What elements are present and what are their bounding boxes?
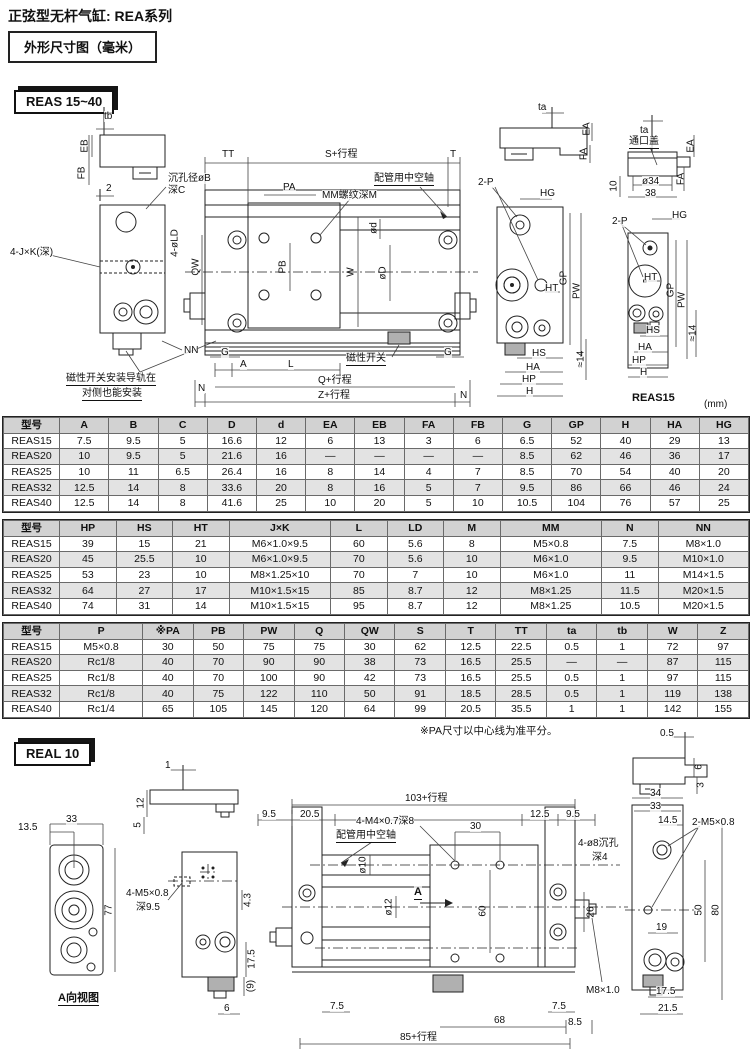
dim-label: G	[221, 347, 229, 358]
table-cell: 11.5	[602, 583, 659, 599]
dim-label: tb	[104, 111, 112, 122]
dim-label: 2	[106, 183, 112, 194]
table-cell: 70	[331, 552, 387, 568]
table-cell: 90	[294, 670, 344, 686]
table-cell: M10×1.0	[658, 552, 748, 568]
table-cell: 21.6	[207, 449, 256, 465]
dim-label: 4-ø8沉孔	[578, 838, 619, 849]
catalog-page: { "page": { "title": "正弦型无杆气缸: REA系列", "…	[0, 0, 750, 1049]
table-header-cell: B	[109, 418, 158, 434]
dim-label: 80	[711, 904, 722, 915]
table-cell: 40	[601, 433, 650, 449]
table-header-cell: d	[256, 418, 305, 434]
table-cell: M6×1.0×9.5	[229, 536, 331, 552]
table-cell: 10.5	[502, 495, 551, 511]
table-cell: M10×1.5×15	[229, 598, 331, 614]
table-cell: REAS15	[4, 433, 60, 449]
dim-label: 配管用中空轴	[374, 173, 434, 186]
table-cell: 53	[60, 567, 116, 583]
table-cell: M6×1.0	[500, 567, 602, 583]
dim-label: 20.5	[300, 809, 319, 820]
dimension-table-1: 型号ABCDdEAEBFAFBGGPHHAHGREAS157.59.5516.6…	[2, 416, 750, 513]
dim-label: ø34	[642, 176, 659, 187]
table-cell: 5.6	[387, 552, 443, 568]
table-cell: 17	[173, 583, 229, 599]
table-cell: 100	[244, 670, 294, 686]
dim-label: QW	[191, 258, 202, 275]
dimension-table: 型号ABCDdEAEBFAFBGGPHHAHGREAS157.59.5516.6…	[3, 417, 749, 512]
table-cell: 74	[60, 598, 116, 614]
unit-note: (mm)	[704, 399, 727, 410]
table-cell: 1	[597, 686, 647, 702]
dim-label: 19	[656, 922, 667, 933]
dim-label: PW	[677, 292, 688, 308]
dim-label: N	[460, 390, 467, 401]
table-cell: 5	[158, 449, 207, 465]
table-cell: 76	[601, 495, 650, 511]
table-cell: 41.6	[207, 495, 256, 511]
dim-label: 2-M5×0.8	[692, 817, 735, 828]
dim-label: 7.5	[552, 1001, 566, 1012]
table-header-cell: HG	[699, 418, 748, 434]
table-cell: 52	[552, 433, 601, 449]
table-cell: 4	[404, 464, 453, 480]
table-cell: 50	[345, 686, 395, 702]
dim-label: HS	[646, 325, 660, 336]
table-header-cell: J×K	[229, 521, 331, 537]
table-cell: 86	[552, 480, 601, 496]
dim-label: G	[444, 347, 452, 358]
table-cell: 142	[647, 701, 697, 717]
table-cell: 8.5	[502, 464, 551, 480]
table-cell: 1	[597, 639, 647, 655]
table-cell: 72	[647, 639, 697, 655]
table-cell: 7	[453, 480, 502, 496]
table-cell: 90	[244, 655, 294, 671]
dim-label: GP	[666, 283, 677, 297]
table-cell: 85	[331, 583, 387, 599]
dim-label: 38	[645, 188, 656, 199]
dim-label: PB	[278, 260, 289, 273]
dim-label: NN	[184, 345, 198, 356]
table-header-cell: P	[60, 624, 143, 640]
magnet-switch-block	[208, 977, 234, 991]
dim-label: 10	[609, 180, 620, 191]
dim-label: 2-P	[612, 216, 628, 227]
table-cell: 99	[395, 701, 445, 717]
table-cell: 5.6	[387, 536, 443, 552]
table-cell: 29	[650, 433, 699, 449]
table-cell: M20×1.5	[658, 598, 748, 614]
table-cell: 10	[60, 464, 109, 480]
dim-label: 磁性开关	[346, 353, 386, 366]
dim-label: GP	[559, 271, 570, 285]
table-row: REAS4012.514841.625102051010.5104765725	[4, 495, 749, 511]
dim-label: 4.3	[243, 893, 254, 907]
table-header-cell: HA	[650, 418, 699, 434]
table-cell: 1	[597, 701, 647, 717]
table-cell: 8	[158, 480, 207, 496]
dim-label: M8×1.0	[586, 985, 620, 996]
dim-label: 33	[650, 801, 661, 812]
table-cell: 46	[601, 449, 650, 465]
table-cell: 64	[345, 701, 395, 717]
dim-label: 深9.5	[136, 902, 160, 913]
table-header-cell: PW	[244, 624, 294, 640]
table-cell: 16	[256, 449, 305, 465]
table-cell: Rc1/8	[60, 670, 143, 686]
table-row: REAS2510116.526.416814478.570544020	[4, 464, 749, 480]
table-cell: 75	[294, 639, 344, 655]
table-cell: 9.5	[602, 552, 659, 568]
dim-label: 30	[470, 821, 481, 832]
page-title: 正弦型无杆气缸: REA系列	[8, 6, 172, 26]
table-cell: 33.6	[207, 480, 256, 496]
table-cell: 26.4	[207, 464, 256, 480]
table-cell: M5×0.8	[60, 639, 143, 655]
table-header-cell: 型号	[4, 521, 60, 537]
table-cell: 14	[109, 480, 158, 496]
table-cell: 70	[552, 464, 601, 480]
table-cell: 40	[143, 686, 193, 702]
dim-label: MM螺纹深M	[322, 190, 377, 201]
table-cell: —	[306, 449, 355, 465]
table-cell: —	[404, 449, 453, 465]
table-cell: 138	[698, 686, 749, 702]
dim-label: 17.5	[656, 986, 675, 997]
table-header-cell: HT	[173, 521, 229, 537]
table-cell: 62	[552, 449, 601, 465]
dim-label: L	[288, 359, 294, 370]
table-cell: 97	[698, 639, 749, 655]
table-cell: 1	[546, 701, 596, 717]
dim-label: 14.5	[658, 815, 677, 826]
table-cell: 16.6	[207, 433, 256, 449]
table-cell: 27	[116, 583, 172, 599]
dim-label: H	[640, 367, 647, 378]
real-dimension-drawing: 0.56313.53377A向视图11254-M5×0.8深9.54.317.5…	[0, 720, 750, 1049]
dim-label: HG	[540, 188, 555, 199]
table-cell: 8.7	[387, 583, 443, 599]
table-cell: M20×1.5	[658, 583, 748, 599]
table-cell: 23	[116, 567, 172, 583]
dim-label: Q+行程	[318, 375, 352, 386]
table-row: REAS15391521M6×1.0×9.5605.68M5×0.87.5M8×…	[4, 536, 749, 552]
table-header-cell: A	[60, 418, 109, 434]
dim-label: 17.5	[247, 949, 258, 968]
table-row: REAS15M5×0.830507575306212.522.50.517297	[4, 639, 749, 655]
table-row: REAS40743114M10×1.5×15958.712M8×1.2510.5…	[4, 598, 749, 614]
table-row: REAS20Rc1/840709090387316.525.5——87115	[4, 655, 749, 671]
table-header-cell: tb	[597, 624, 647, 640]
table-cell: 12	[444, 583, 500, 599]
reas-left-side-view	[50, 107, 216, 372]
dim-label: A	[240, 359, 247, 370]
dim-label: T	[450, 149, 456, 160]
table-cell: 95	[331, 598, 387, 614]
table-cell: REAS25	[4, 464, 60, 480]
table-header-cell: PB	[193, 624, 243, 640]
table-cell: 97	[647, 670, 697, 686]
table-cell: 73	[395, 670, 445, 686]
table-cell: 20	[699, 464, 748, 480]
table-cell: 90	[294, 655, 344, 671]
dimension-table: 型号HPHSHTJ×KLLDMMMNNNREAS15391521M6×1.0×9…	[3, 520, 749, 615]
dim-label: H	[526, 386, 533, 397]
table-cell: 10.5	[602, 598, 659, 614]
dim-label: 深C	[168, 185, 185, 196]
table-cell: 30	[345, 639, 395, 655]
table-cell: 8.5	[502, 449, 551, 465]
dimension-table: 型号P※PAPBPWQQWSTTTtatbWZREAS15M5×0.830507…	[3, 623, 749, 718]
dim-label: PW	[572, 283, 583, 299]
dim-label: 34	[650, 788, 661, 799]
table-cell: 24	[699, 480, 748, 496]
dim-label: 12.5	[530, 809, 549, 820]
table-cell: 75	[244, 639, 294, 655]
real-front-view	[50, 824, 115, 975]
table-cell: 6	[453, 433, 502, 449]
dim-label: 6	[224, 1003, 230, 1014]
table-header-cell: GP	[552, 418, 601, 434]
table-cell: 40	[143, 670, 193, 686]
table-cell: REAS25	[4, 670, 60, 686]
table-cell: M5×0.8	[500, 536, 602, 552]
magnet-switch-block	[388, 332, 410, 344]
table-cell: 11	[602, 567, 659, 583]
table-cell: REAS32	[4, 583, 60, 599]
table-cell: 120	[294, 701, 344, 717]
dim-label: 103+行程	[405, 793, 448, 804]
table-cell: 54	[601, 464, 650, 480]
dim-label: A向视图	[58, 992, 99, 1006]
table-cell: 9.5	[502, 480, 551, 496]
table-cell: 64	[60, 583, 116, 599]
table-cell: REAS40	[4, 495, 60, 511]
table-cell: REAS32	[4, 686, 60, 702]
table-row: REAS3212.514833.620816579.586664624	[4, 480, 749, 496]
dim-label: 33	[66, 814, 77, 825]
table-cell: 16	[256, 464, 305, 480]
table-header-cell: TT	[496, 624, 546, 640]
table-cell: 36	[650, 449, 699, 465]
table-cell: M8×1.0	[658, 536, 748, 552]
table-row: REAS204525.510M6×1.0×9.5705.610M6×1.09.5…	[4, 552, 749, 568]
table-row: REAS20109.5521.616————8.562463617	[4, 449, 749, 465]
dim-label: FB	[77, 167, 88, 180]
table-cell: 20.5	[445, 701, 495, 717]
table-cell: 104	[552, 495, 601, 511]
dim-label: ø12	[384, 898, 395, 915]
table-header-cell: S	[395, 624, 445, 640]
table-cell: 9.5	[109, 449, 158, 465]
dim-label: HS	[532, 348, 546, 359]
table-cell: 10	[60, 449, 109, 465]
real-mount-bracket-view	[144, 765, 238, 834]
table-cell: 31	[116, 598, 172, 614]
table-cell: 70	[331, 567, 387, 583]
table-cell: 10	[444, 567, 500, 583]
dim-label: 60	[478, 905, 489, 916]
dim-label: 13.5	[18, 822, 37, 833]
table-cell: 70	[193, 670, 243, 686]
table-cell: 8	[306, 480, 355, 496]
real-plan-view	[258, 799, 628, 1049]
table-cell: 14	[173, 598, 229, 614]
table-cell: 8	[444, 536, 500, 552]
dim-label: 2-P	[478, 177, 494, 188]
table-cell: REAS20	[4, 655, 60, 671]
table-cell: 145	[244, 701, 294, 717]
dim-label: 0.5	[660, 728, 674, 739]
table-cell: 25.5	[116, 552, 172, 568]
real-end-view	[625, 798, 722, 1014]
table-cell: REAS25	[4, 567, 60, 583]
dimension-table-3: 型号P※PAPBPWQQWSTTTtatbWZREAS15M5×0.830507…	[2, 622, 750, 719]
table-header-cell: LD	[387, 521, 443, 537]
table-cell: 35.5	[496, 701, 546, 717]
table-cell: 75	[193, 686, 243, 702]
table-cell: 12	[444, 598, 500, 614]
table-cell: 39	[60, 536, 116, 552]
table-cell: 15	[116, 536, 172, 552]
table-cell: 1	[597, 670, 647, 686]
table-cell: 38	[345, 655, 395, 671]
table-cell: 40	[143, 655, 193, 671]
table-cell: 13	[355, 433, 404, 449]
dim-label: HP	[632, 355, 646, 366]
dim-label: 4-M4×0.7深8	[356, 816, 414, 827]
table-cell: 45	[60, 552, 116, 568]
dim-label: Z+行程	[318, 390, 350, 401]
table-header-cell: FB	[453, 418, 502, 434]
table-header-cell: HP	[60, 521, 116, 537]
table-cell: 14	[355, 464, 404, 480]
table-header-cell: 型号	[4, 624, 60, 640]
table-cell: 25	[699, 495, 748, 511]
table-row: REAS32642717M10×1.5×15858.712M8×1.2511.5…	[4, 583, 749, 599]
dim-label: 4-øLD	[170, 229, 181, 257]
table-cell: 105	[193, 701, 243, 717]
dim-label: 4-J×K(深)	[10, 247, 53, 258]
table-cell: 40	[650, 464, 699, 480]
dim-label: N	[198, 383, 205, 394]
dim-label: 1	[165, 760, 171, 771]
table-cell: 17	[699, 449, 748, 465]
table-cell: 10	[453, 495, 502, 511]
table-cell: 30	[143, 639, 193, 655]
dim-label: FA	[676, 173, 687, 185]
table-cell: 3	[404, 433, 453, 449]
dim-label: W	[346, 267, 357, 276]
table-cell: 62	[395, 639, 445, 655]
dim-label: EB	[80, 139, 91, 152]
table-cell: 16.5	[445, 655, 495, 671]
dim-label: S+行程	[325, 149, 358, 160]
table-cell: 122	[244, 686, 294, 702]
table-header-cell: N	[602, 521, 659, 537]
table-cell: 20	[256, 480, 305, 496]
table-cell: 12.5	[445, 639, 495, 655]
dim-label: 配管用中空轴	[336, 830, 396, 843]
table-header-cell: C	[158, 418, 207, 434]
table-cell: 0.5	[546, 686, 596, 702]
dim-label: HT	[644, 272, 657, 283]
table-header-cell: M	[444, 521, 500, 537]
dim-label: 68	[494, 1015, 505, 1026]
table-cell: 11	[109, 464, 158, 480]
dim-label: 3	[696, 782, 707, 788]
dim-label: ≈14	[688, 325, 699, 342]
table-cell: 87	[647, 655, 697, 671]
table-cell: 42	[345, 670, 395, 686]
table-cell: 50	[193, 639, 243, 655]
dim-label: 磁性开关安装导轨在	[66, 373, 156, 386]
table-cell: 16	[355, 480, 404, 496]
table-cell: 25	[256, 495, 305, 511]
table-row: REAS25532310M8×1.25×1070710M6×1.011M14×1…	[4, 567, 749, 583]
table-cell: 115	[698, 655, 749, 671]
table-header-cell: ※PA	[143, 624, 193, 640]
dim-label: FA	[579, 148, 590, 160]
table-header-cell: NN	[658, 521, 748, 537]
table-cell: 7.5	[60, 433, 109, 449]
table-cell: REAS40	[4, 701, 60, 717]
subtitle-box: 外形尺寸图（毫米）	[8, 31, 157, 63]
dim-label: ta	[640, 125, 648, 136]
table-row: REAS40Rc1/465105145120649920.535.5111421…	[4, 701, 749, 717]
table-cell: 8	[306, 464, 355, 480]
table-row: REAS157.59.5516.612613366.552402913	[4, 433, 749, 449]
dim-label: øD	[378, 266, 389, 279]
dim-label: A	[414, 886, 422, 900]
table-cell: —	[355, 449, 404, 465]
table-cell: 14	[109, 495, 158, 511]
dim-label: HP	[522, 374, 536, 385]
table-cell: 25.5	[496, 655, 546, 671]
table-header-cell: L	[331, 521, 387, 537]
dim-label: 85+行程	[400, 1032, 437, 1043]
dim-label: (9)	[246, 980, 257, 992]
table-header-cell: EB	[355, 418, 404, 434]
dim-label: HA	[526, 362, 540, 373]
table-cell: 65	[143, 701, 193, 717]
table-cell: M6×1.0×9.5	[229, 552, 331, 568]
dim-label: 26	[586, 906, 597, 917]
dim-label: 50	[694, 904, 705, 915]
reas-dimension-drawing: tbEBFB2沉孔径øB深C4-J×K(深)4-øLDQWNN磁性开关安装导轨在…	[0, 95, 750, 415]
dim-label: PA	[283, 182, 296, 193]
table-cell: 13	[699, 433, 748, 449]
table-header-cell: QW	[345, 624, 395, 640]
table-cell: 25.5	[496, 670, 546, 686]
table-header-cell: 型号	[4, 418, 60, 434]
real-endcap-side-view	[168, 852, 246, 1014]
table-cell: 21	[173, 536, 229, 552]
table-cell: 10	[306, 495, 355, 511]
dim-label: 沉孔径øB	[168, 173, 211, 184]
table-cell: REAS15	[4, 536, 60, 552]
table-cell: 6.5	[158, 464, 207, 480]
table-cell: M8×1.25	[500, 583, 602, 599]
table-cell: 91	[395, 686, 445, 702]
dimension-table-2: 型号HPHSHTJ×KLLDMMMNNNREAS15391521M6×1.0×9…	[2, 519, 750, 616]
table-cell: 10	[173, 552, 229, 568]
table-cell: 6.5	[502, 433, 551, 449]
magnet-switch-block	[505, 343, 525, 355]
table-cell: REAS40	[4, 598, 60, 614]
table-cell: Rc1/4	[60, 701, 143, 717]
